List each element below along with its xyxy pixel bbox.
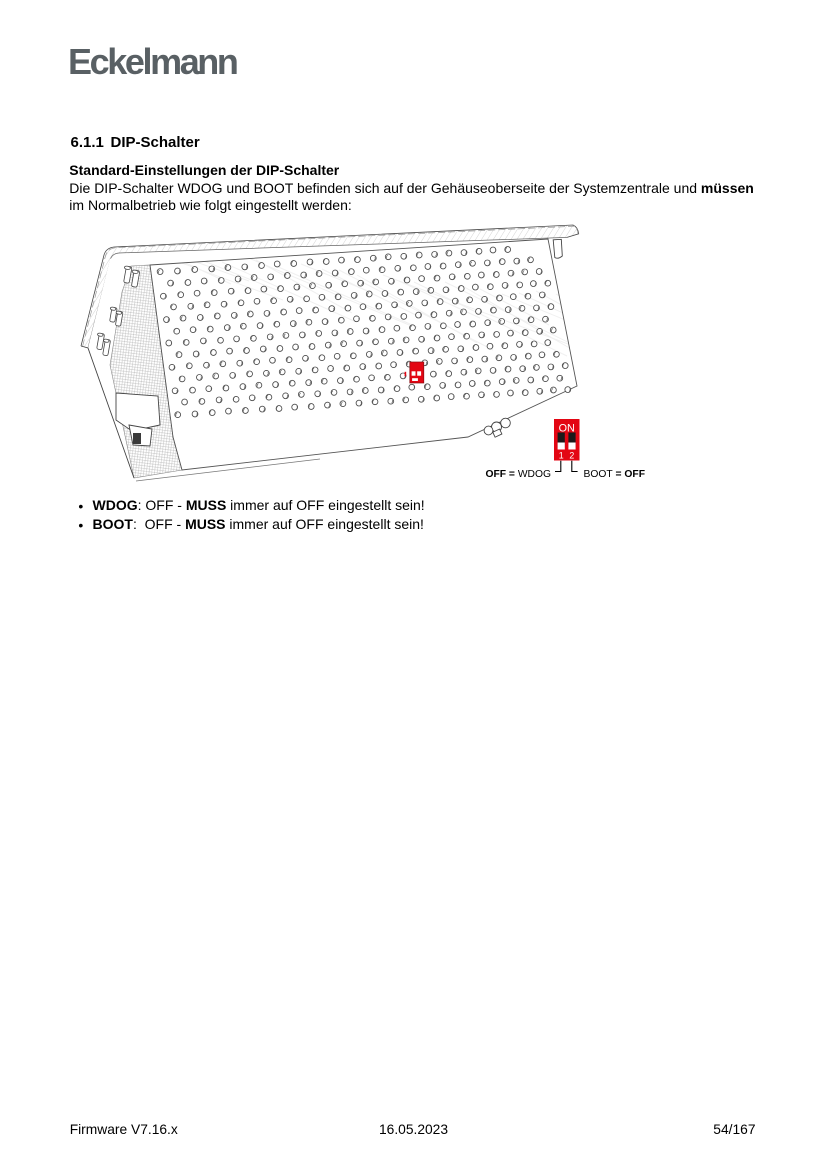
svg-text:BOOT = OFF: BOOT = OFF (584, 469, 646, 480)
svg-text:2: 2 (569, 451, 574, 461)
svg-text:OFF = WDOG: OFF = WDOG (485, 469, 551, 480)
svg-text:1: 1 (559, 451, 564, 461)
